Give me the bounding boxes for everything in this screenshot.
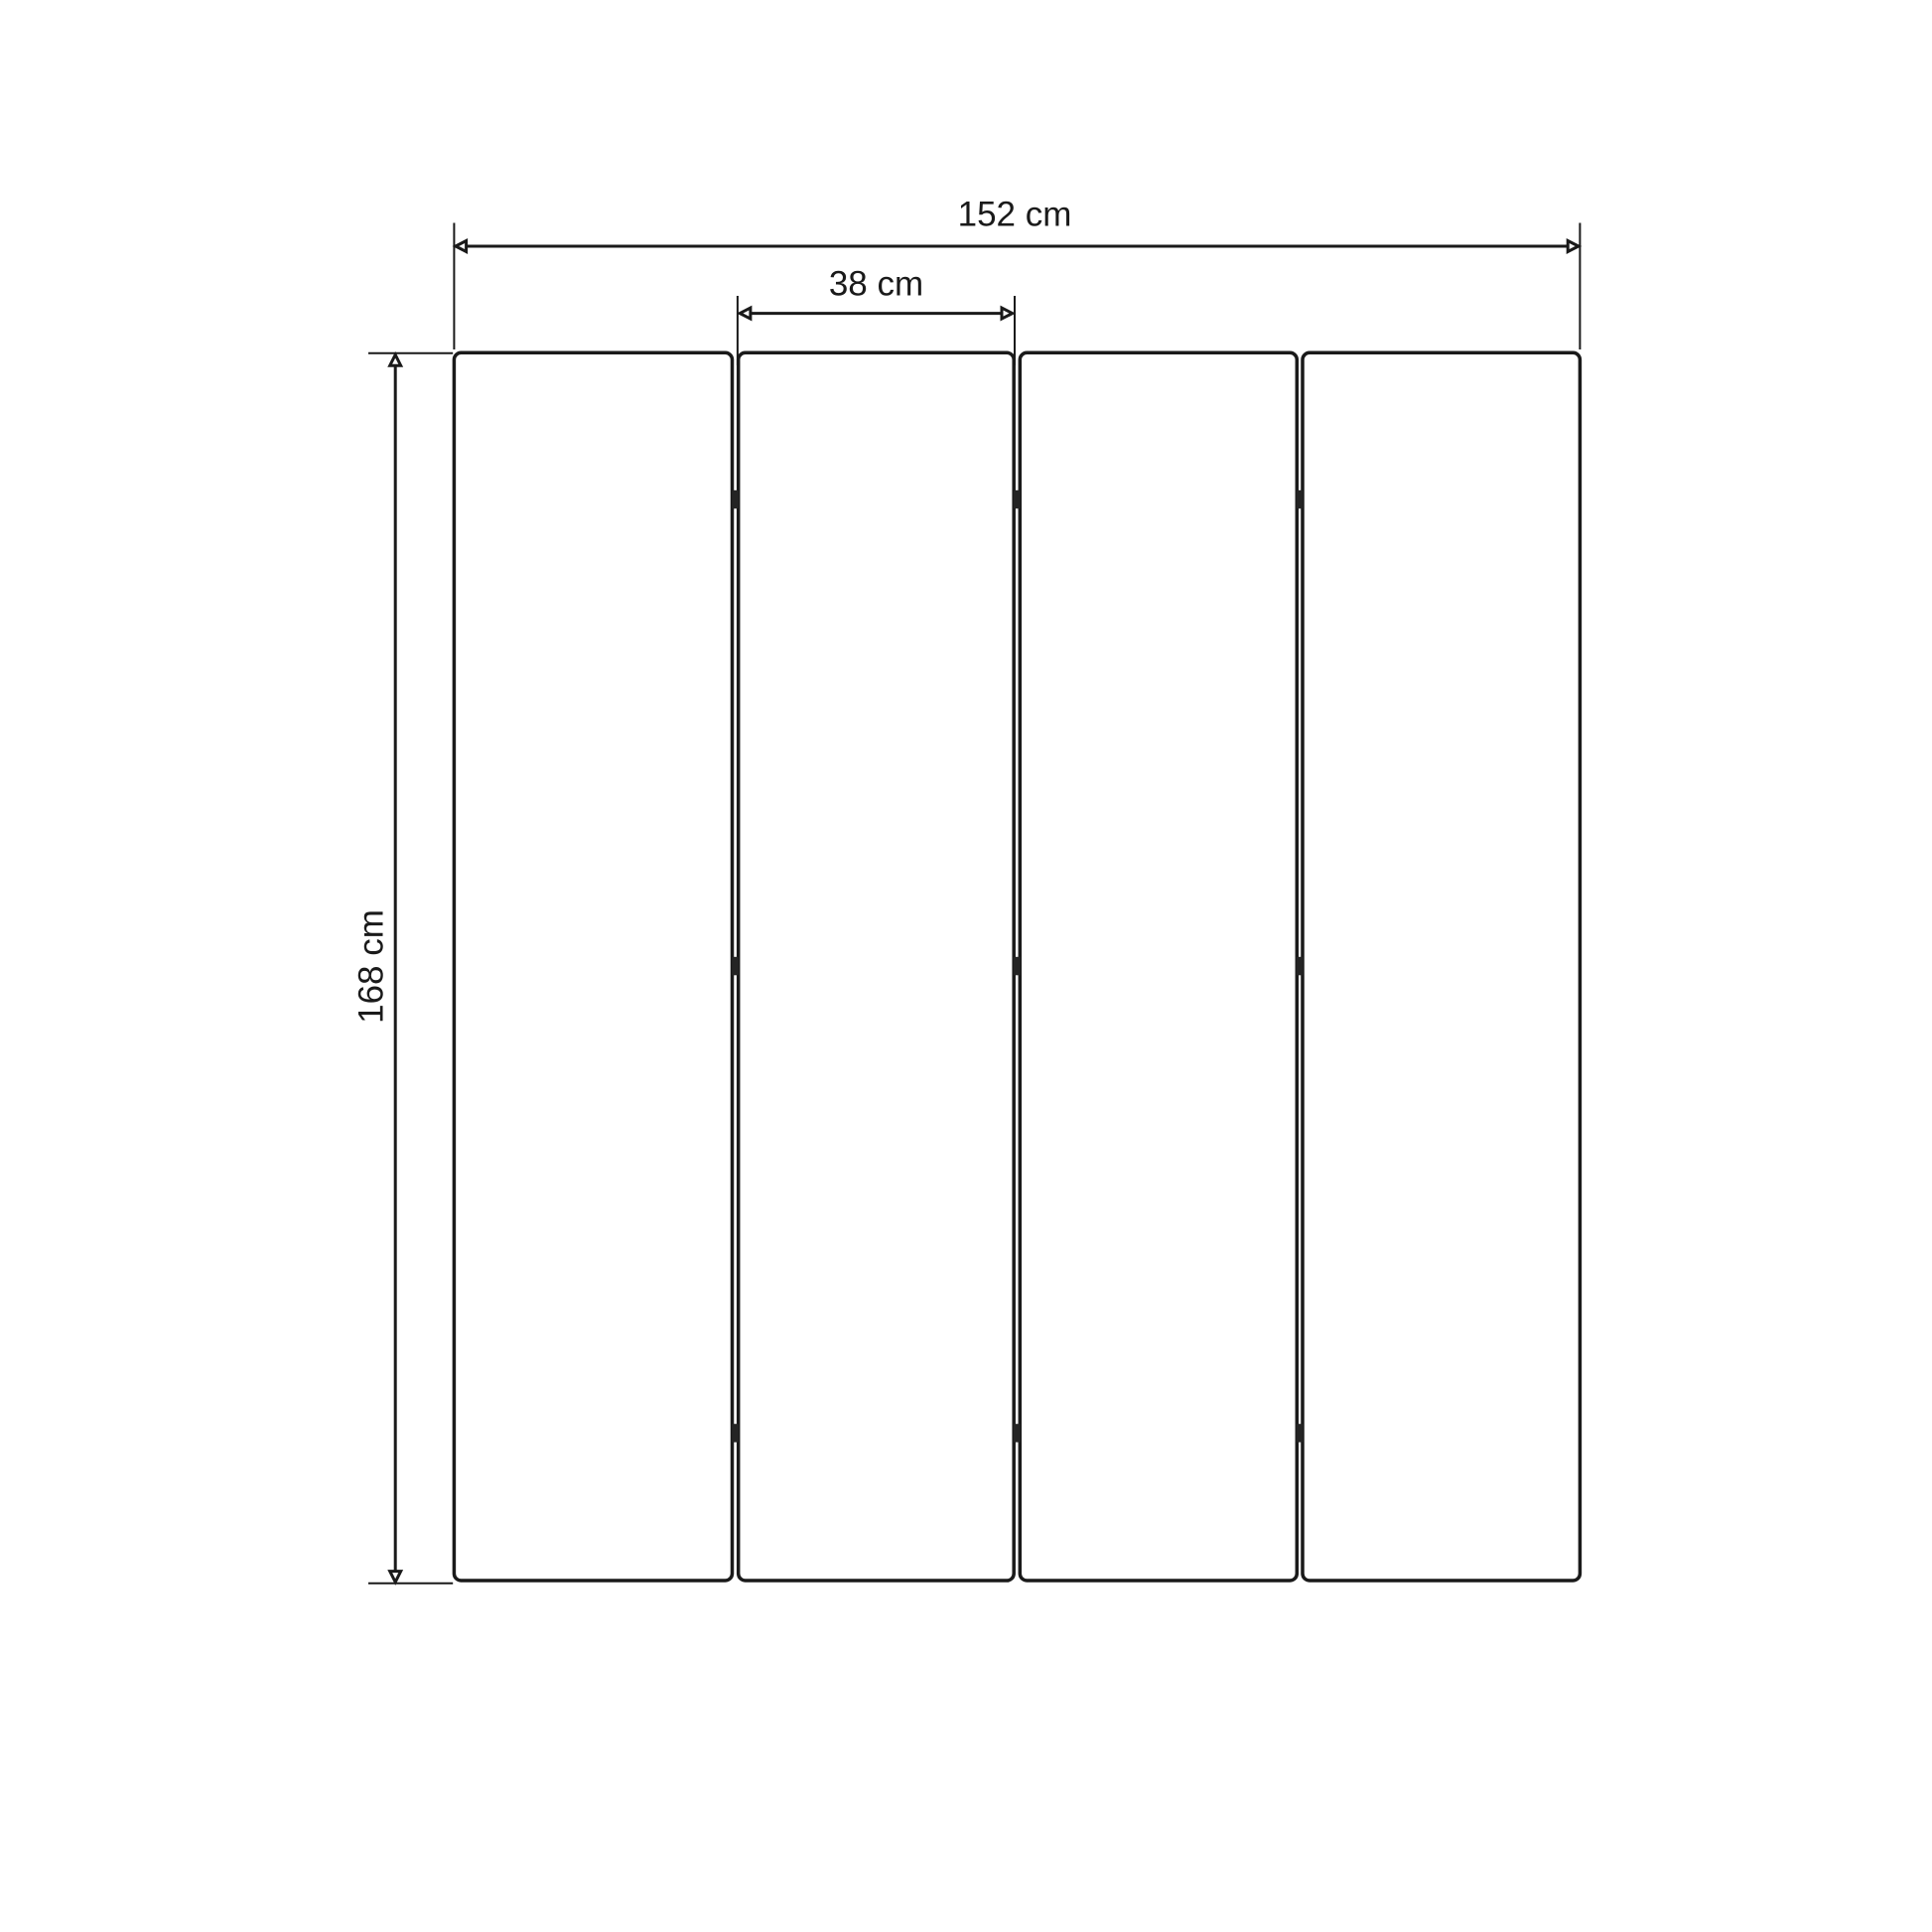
svg-text:38 cm: 38 cm: [829, 265, 923, 304]
svg-text:152 cm: 152 cm: [958, 196, 1072, 234]
svg-text:168 cm: 168 cm: [352, 909, 391, 1024]
